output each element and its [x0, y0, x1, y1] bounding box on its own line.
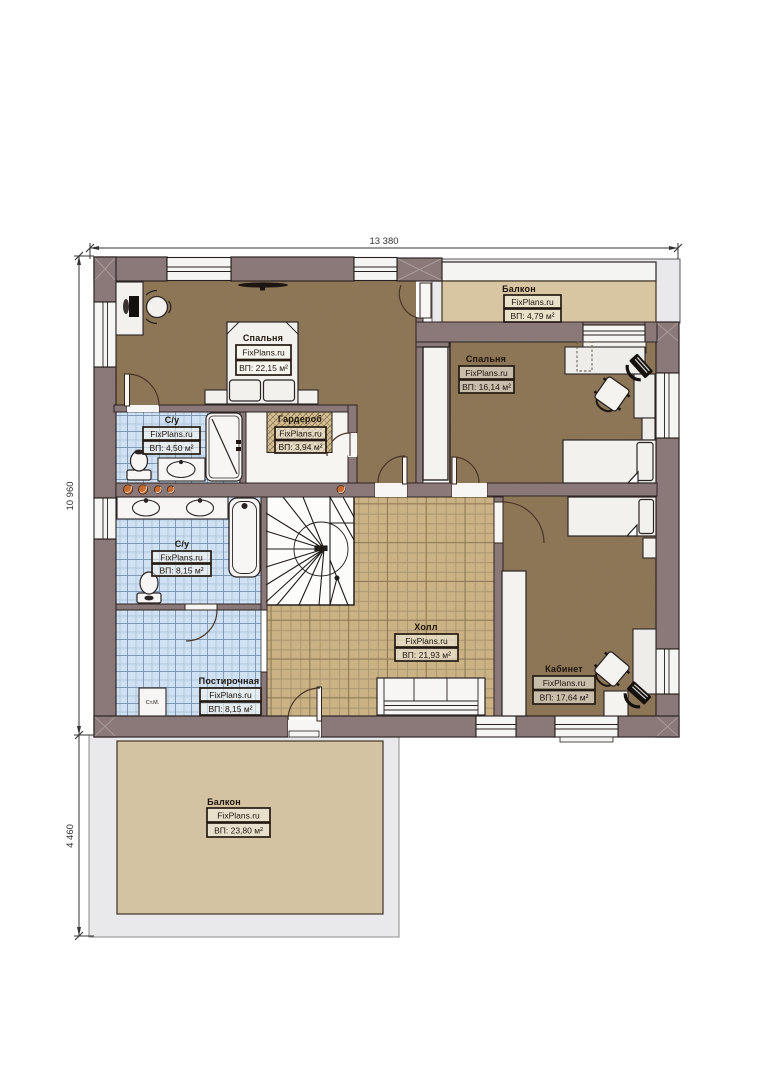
svg-text:FixPlans.ru: FixPlans.ru	[279, 429, 322, 439]
svg-text:FixPlans.ru: FixPlans.ru	[543, 678, 586, 688]
svg-text:ВП: 22,15 м²: ВП: 22,15 м²	[239, 363, 288, 373]
svg-text:FixPlans.ru: FixPlans.ru	[150, 429, 193, 439]
svg-text:Балкон: Балкон	[207, 797, 241, 807]
svg-text:FixPlans.ru: FixPlans.ru	[242, 348, 285, 358]
svg-text:Балкон: Балкон	[502, 284, 536, 294]
svg-text:Постирочная: Постирочная	[199, 676, 260, 686]
svg-text:Гардероб: Гардероб	[278, 414, 322, 424]
svg-text:FixPlans.ru: FixPlans.ru	[405, 636, 448, 646]
svg-text:ВП: 16,14 м²: ВП: 16,14 м²	[462, 382, 511, 392]
svg-text:С/у: С/у	[165, 415, 180, 425]
svg-text:Спальня: Спальня	[243, 333, 283, 343]
svg-text:ВП: 21,93 м²: ВП: 21,93 м²	[402, 650, 451, 660]
svg-text:ВП: 4,50 м²: ВП: 4,50 м²	[149, 443, 193, 453]
svg-text:FixPlans.ru: FixPlans.ru	[160, 552, 203, 562]
svg-text:10 960: 10 960	[65, 481, 76, 510]
svg-text:ВП: 17,64 м²: ВП: 17,64 м²	[540, 693, 589, 703]
svg-text:4 460: 4 460	[65, 824, 76, 848]
svg-text:ВП: 4,79 м²: ВП: 4,79 м²	[510, 311, 554, 321]
svg-text:Ст.М.: Ст.М.	[146, 700, 160, 706]
svg-text:Спальня: Спальня	[466, 354, 506, 364]
svg-text:13 380: 13 380	[369, 236, 398, 247]
svg-text:ВП: 3,94 м²: ВП: 3,94 м²	[278, 442, 322, 452]
svg-text:FixPlans.ru: FixPlans.ru	[217, 810, 260, 820]
svg-text:ВП: 23,80 м²: ВП: 23,80 м²	[214, 825, 263, 835]
svg-text:FixPlans.ru: FixPlans.ru	[209, 690, 252, 700]
svg-text:FixPlans.ru: FixPlans.ru	[465, 368, 508, 378]
svg-text:Кабинет: Кабинет	[545, 664, 583, 674]
svg-text:FixPlans.ru: FixPlans.ru	[511, 297, 554, 307]
svg-text:С/у: С/у	[175, 539, 190, 549]
svg-text:Холл: Холл	[414, 622, 437, 632]
svg-text:ВП: 8,15 м²: ВП: 8,15 м²	[159, 565, 203, 575]
svg-text:ВП: 8,15 м²: ВП: 8,15 м²	[208, 704, 252, 714]
